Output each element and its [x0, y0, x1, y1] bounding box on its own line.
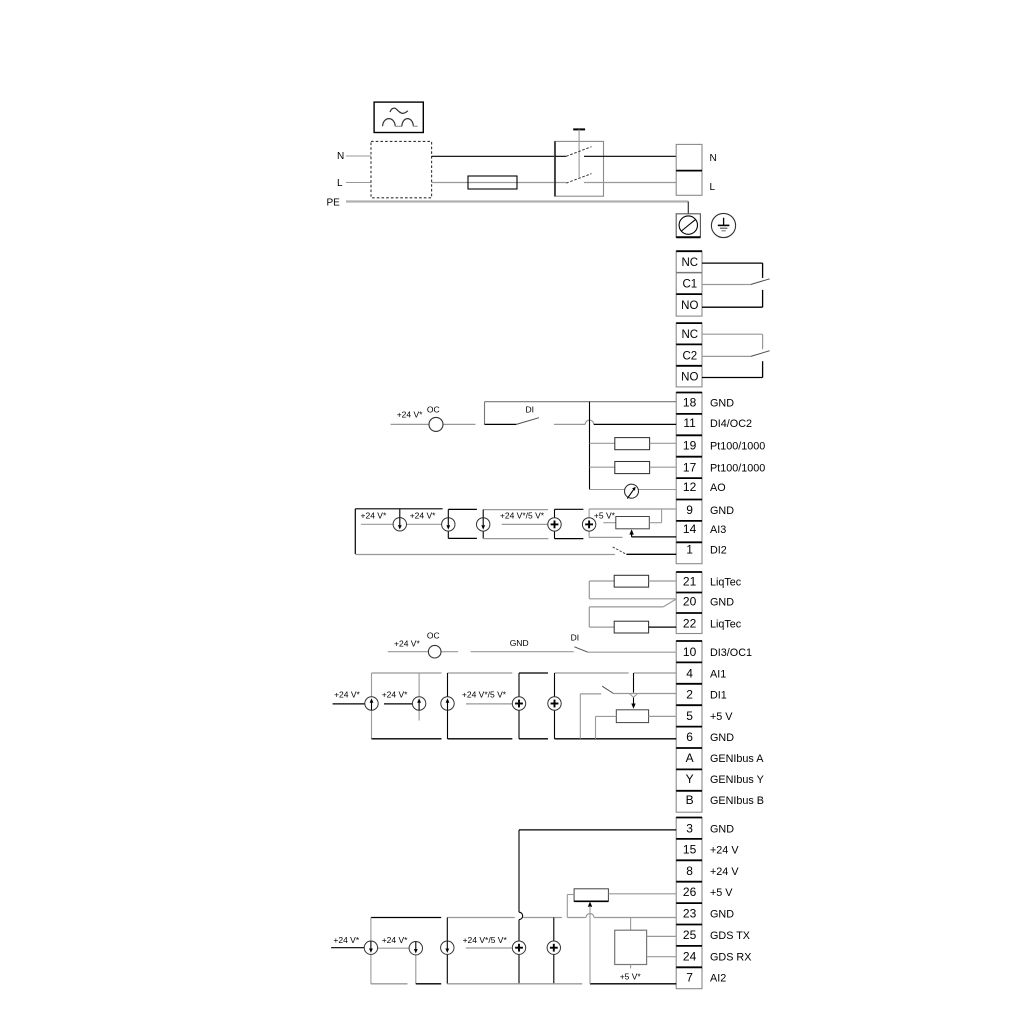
- svg-text:C1: C1: [682, 279, 697, 291]
- svg-text:4: 4: [686, 666, 693, 680]
- svg-text:10: 10: [683, 645, 697, 659]
- svg-text:DI4/OC2: DI4/OC2: [710, 418, 752, 430]
- svg-text:+5 V: +5 V: [710, 711, 733, 723]
- svg-text:3: 3: [686, 822, 693, 836]
- svg-text:NO: NO: [681, 372, 698, 384]
- svg-text:DI3/OC1: DI3/OC1: [710, 647, 752, 659]
- svg-text:GND: GND: [710, 824, 734, 836]
- svg-text:24: 24: [683, 950, 697, 964]
- svg-text:B: B: [686, 793, 694, 807]
- svg-text:1: 1: [686, 542, 693, 556]
- svg-text:N: N: [710, 153, 717, 164]
- svg-text:6: 6: [686, 730, 693, 744]
- svg-text:NC: NC: [681, 257, 698, 269]
- svg-text:+24 V*: +24 V*: [382, 935, 408, 945]
- svg-text:Y: Y: [686, 772, 694, 786]
- svg-text:+24 V*/5 V*: +24 V*/5 V*: [463, 935, 508, 945]
- svg-text:19: 19: [683, 439, 697, 453]
- svg-text:OC: OC: [427, 631, 440, 641]
- svg-text:+5 V*: +5 V*: [594, 511, 616, 521]
- svg-text:AI2: AI2: [710, 973, 726, 985]
- svg-text:+24 V*/5 V*: +24 V*/5 V*: [462, 689, 507, 699]
- svg-text:GENIbus Y: GENIbus Y: [710, 774, 764, 786]
- svg-text:17: 17: [683, 461, 697, 475]
- svg-text:PE: PE: [327, 197, 341, 208]
- svg-text:C2: C2: [682, 350, 697, 362]
- svg-text:14: 14: [683, 522, 697, 536]
- svg-text:LiqTec: LiqTec: [710, 619, 742, 631]
- svg-text:GND: GND: [710, 505, 734, 517]
- svg-text:GDS TX: GDS TX: [710, 930, 750, 942]
- svg-text:+24 V: +24 V: [710, 866, 739, 878]
- svg-text:+24 V: +24 V: [710, 845, 739, 857]
- svg-text:8: 8: [686, 864, 693, 878]
- svg-text:+24 V*: +24 V*: [361, 511, 387, 521]
- svg-text:A: A: [686, 751, 694, 765]
- svg-text:20: 20: [683, 595, 697, 609]
- svg-text:2: 2: [686, 687, 693, 701]
- svg-text:AI1: AI1: [710, 668, 726, 680]
- svg-text:GDS RX: GDS RX: [710, 952, 751, 964]
- svg-text:9: 9: [686, 503, 693, 517]
- svg-text:5: 5: [686, 709, 693, 723]
- svg-text:+5 V: +5 V: [710, 887, 733, 899]
- svg-text:DI: DI: [526, 405, 535, 415]
- svg-text:+24 V*: +24 V*: [333, 935, 359, 945]
- svg-text:15: 15: [683, 843, 697, 857]
- svg-text:+24 V*: +24 V*: [410, 511, 436, 521]
- svg-text:23: 23: [683, 907, 697, 921]
- svg-text:DI: DI: [571, 633, 580, 643]
- svg-text:11: 11: [683, 416, 696, 430]
- svg-text:GND: GND: [710, 909, 734, 921]
- svg-text:N: N: [337, 151, 344, 162]
- svg-text:DI2: DI2: [710, 544, 727, 556]
- svg-text:Pt100/1000: Pt100/1000: [710, 463, 765, 475]
- svg-text:18: 18: [683, 396, 697, 410]
- svg-text:+24 V*: +24 V*: [397, 410, 423, 420]
- svg-text:+24 V*/5 V*: +24 V*/5 V*: [500, 511, 545, 521]
- svg-text:25: 25: [683, 928, 697, 942]
- svg-text:+5 V*: +5 V*: [620, 972, 642, 982]
- svg-text:GND: GND: [710, 597, 734, 609]
- svg-text:+24 V*: +24 V*: [394, 638, 420, 648]
- svg-text:+24 V*: +24 V*: [334, 689, 360, 699]
- svg-text:12: 12: [683, 480, 697, 494]
- svg-text:AO: AO: [710, 482, 726, 494]
- svg-text:Pt100/1000: Pt100/1000: [710, 441, 765, 453]
- svg-text:22: 22: [683, 617, 697, 631]
- svg-text:7: 7: [686, 971, 693, 985]
- svg-text:21: 21: [683, 575, 697, 589]
- svg-text:26: 26: [683, 885, 697, 899]
- svg-text:+24 V*: +24 V*: [382, 689, 408, 699]
- svg-text:GND: GND: [710, 398, 734, 410]
- svg-text:GND: GND: [510, 638, 529, 648]
- svg-text:NC: NC: [681, 329, 698, 341]
- svg-text:L: L: [710, 182, 716, 193]
- svg-text:AI3: AI3: [710, 524, 726, 536]
- svg-text:NO: NO: [681, 300, 698, 312]
- svg-text:OC: OC: [427, 405, 440, 415]
- svg-text:LiqTec: LiqTec: [710, 577, 742, 589]
- svg-text:GND: GND: [710, 732, 734, 744]
- svg-text:L: L: [337, 178, 343, 189]
- svg-text:GENIbus B: GENIbus B: [710, 795, 764, 807]
- svg-text:GENIbus A: GENIbus A: [710, 753, 764, 765]
- svg-text:DI1: DI1: [710, 689, 727, 701]
